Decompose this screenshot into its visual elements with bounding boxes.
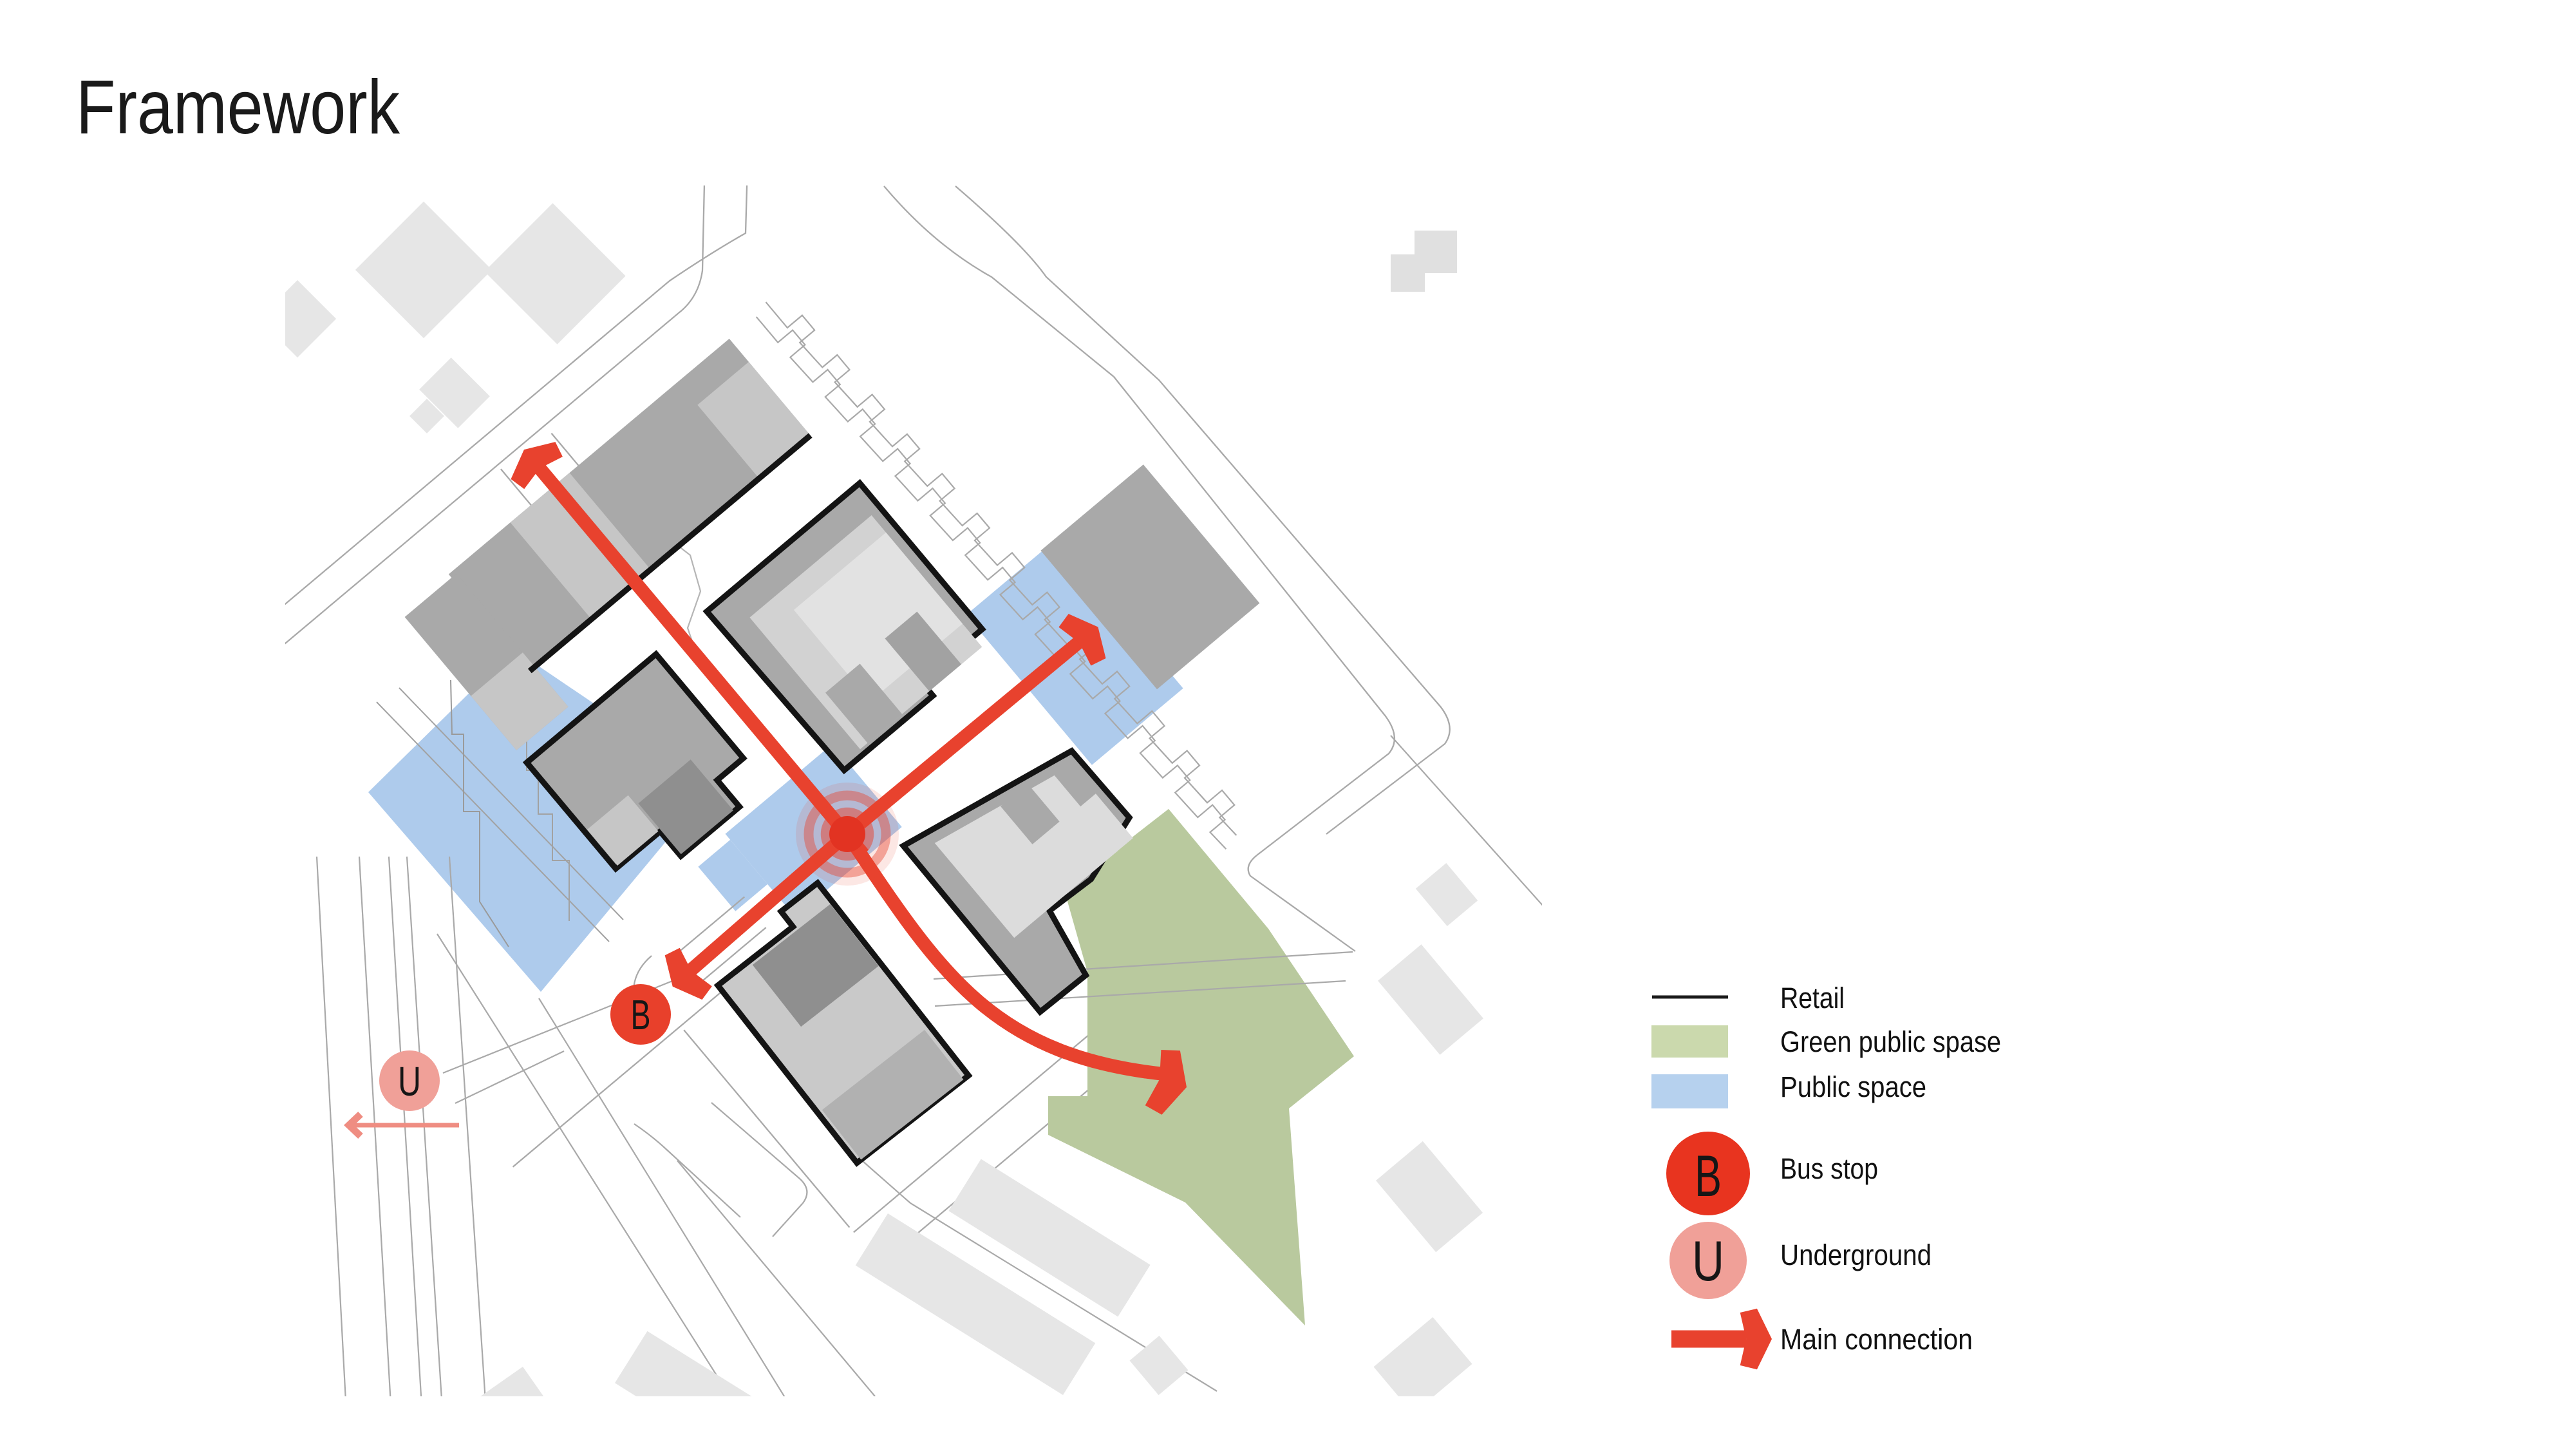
svg-text:B: B bbox=[631, 991, 651, 1038]
svg-text:Main connection: Main connection bbox=[1780, 1323, 1973, 1356]
svg-text:U: U bbox=[1692, 1229, 1724, 1293]
svg-text:B: B bbox=[1695, 1144, 1722, 1209]
svg-text:Retail: Retail bbox=[1780, 982, 1845, 1014]
svg-text:Framework: Framework bbox=[76, 64, 400, 150]
svg-text:Underground: Underground bbox=[1780, 1239, 1932, 1271]
svg-text:U: U bbox=[398, 1058, 421, 1105]
svg-text:Green public spase: Green public spase bbox=[1780, 1025, 2001, 1058]
svg-text:Public space: Public space bbox=[1780, 1070, 1926, 1103]
svg-text:Bus stop: Bus stop bbox=[1780, 1152, 1878, 1185]
